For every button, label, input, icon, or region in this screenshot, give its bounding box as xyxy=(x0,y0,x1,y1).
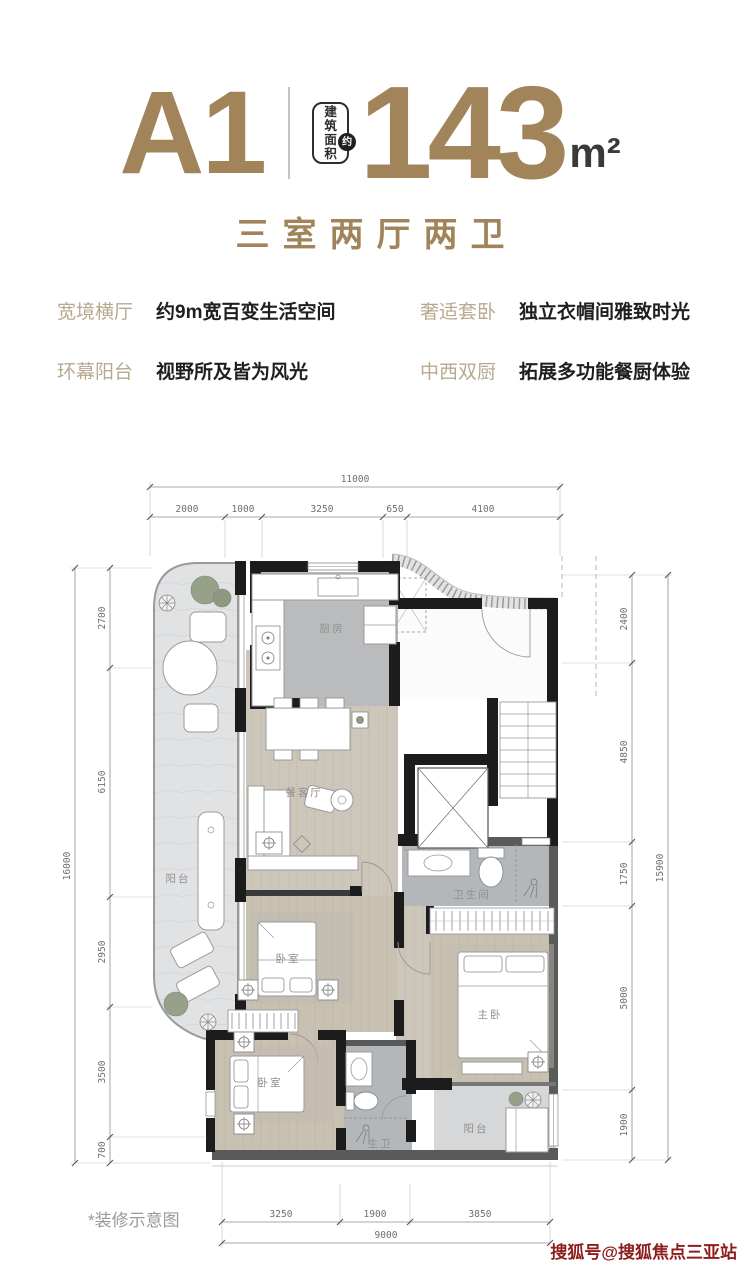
room-label-bedroom-second: 卧室 xyxy=(258,1076,283,1089)
area-unit: m² xyxy=(569,129,620,185)
badge-char: 积 xyxy=(324,147,337,161)
room-label-bedroom-mid: 卧室 xyxy=(276,952,301,965)
hero-header: A1 建 筑 面 积 约 143 m² xyxy=(0,82,740,185)
feature-item: 环幕阳台 视野所及皆为风光 xyxy=(57,357,420,384)
room-label-balcony-bottom: 阳台 xyxy=(464,1122,489,1135)
svg-text:1900: 1900 xyxy=(619,1113,630,1136)
room-label-bathroom: 卫生间 xyxy=(453,888,491,901)
feature-title: 环幕阳台 xyxy=(57,357,133,384)
svg-text:9000: 9000 xyxy=(375,1230,398,1241)
badge-char: 筑 xyxy=(324,119,337,133)
svg-text:11000: 11000 xyxy=(341,474,370,485)
feature-item: 中西双厨 拓展多功能餐厨体验 xyxy=(420,357,696,384)
svg-text:6150: 6150 xyxy=(97,770,108,793)
kitchen-stove xyxy=(256,626,280,670)
svg-text:2400: 2400 xyxy=(619,607,630,630)
svg-text:650: 650 xyxy=(386,504,403,515)
property-line xyxy=(562,556,596,700)
elevator xyxy=(418,768,488,848)
svg-text:5000: 5000 xyxy=(619,986,630,1009)
decoration-note: *装修示意图 xyxy=(88,1206,180,1231)
svg-text:3850: 3850 xyxy=(469,1209,492,1220)
balcony-glass-wall xyxy=(239,563,244,1040)
badge-char: 面 xyxy=(324,133,337,147)
bedroom2-closet xyxy=(228,1010,298,1032)
svg-text:3500: 3500 xyxy=(97,1060,108,1083)
svg-text:15900: 15900 xyxy=(655,853,666,882)
svg-text:3250: 3250 xyxy=(270,1209,293,1220)
master-closet xyxy=(430,908,554,934)
room-label-balcony-left: 阳台 xyxy=(166,872,191,885)
page: A1 建 筑 面 积 约 143 m² 三室两厅两卫 宽境横厅 约9m宽百变生活… xyxy=(0,0,740,1270)
svg-text:1900: 1900 xyxy=(364,1209,387,1220)
svg-text:4100: 4100 xyxy=(472,504,495,515)
floor-plan-svg: 阳台 厨房 餐客厅 卧室 卫生间 主卧 卧室 主卫 阳台 11000 2000 … xyxy=(0,455,740,1255)
feature-desc: 独立衣帽间雅致时光 xyxy=(519,297,690,324)
stairs xyxy=(500,702,556,798)
room-label-master-bedroom: 主卧 xyxy=(478,1008,503,1021)
svg-text:2950: 2950 xyxy=(97,940,108,963)
unit-name: A1 xyxy=(119,85,264,182)
area-badge: 建 筑 面 积 约 xyxy=(312,102,349,164)
feature-item: 宽境横厅 约9m宽百变生活空间 xyxy=(57,297,420,324)
floor-plan: 阳台 厨房 餐客厅 卧室 卫生间 主卧 卧室 主卫 阳台 11000 2000 … xyxy=(0,455,740,1255)
dim-bottom: 3250 1900 3850 9000 xyxy=(219,1162,553,1248)
dim-top: 11000 2000 1000 3250 650 4100 xyxy=(147,474,563,558)
svg-text:2700: 2700 xyxy=(97,606,108,629)
area-value: 143 xyxy=(359,82,564,185)
room-entry-floor xyxy=(398,609,548,699)
feature-desc: 约9m宽百变生活空间 xyxy=(156,297,335,324)
feature-item: 奢适套卧 独立衣帽间雅致时光 xyxy=(420,297,696,324)
dim-right: 2400 4850 1750 5000 1900 15900 xyxy=(562,572,672,1163)
feature-desc: 拓展多功能餐厨体验 xyxy=(519,357,690,384)
svg-text:700: 700 xyxy=(97,1141,108,1158)
badge-char: 建 xyxy=(324,105,337,119)
layout-type-subtitle: 三室两厅两卫 xyxy=(0,207,740,256)
approx-circle-badge: 约 xyxy=(338,133,356,151)
svg-text:3250: 3250 xyxy=(311,504,334,515)
hatched-walkway xyxy=(392,554,556,604)
feature-title: 宽境横厅 xyxy=(57,297,133,324)
feature-desc: 视野所及皆为风光 xyxy=(156,357,308,384)
hero-divider xyxy=(288,87,290,179)
svg-text:1000: 1000 xyxy=(232,504,255,515)
room-label-kitchen: 厨房 xyxy=(320,622,345,635)
room-label-dining-living: 餐客厅 xyxy=(285,786,323,799)
feature-title: 奢适套卧 xyxy=(420,297,496,324)
svg-text:4850: 4850 xyxy=(619,740,630,763)
svg-text:2000: 2000 xyxy=(176,504,199,515)
watermark-sohu: 搜狐号@搜狐焦点三亚站 xyxy=(550,1238,737,1263)
feature-list: 宽境横厅 约9m宽百变生活空间 奢适套卧 独立衣帽间雅致时光 环幕阳台 视野所及… xyxy=(57,297,696,384)
svg-text:1750: 1750 xyxy=(619,862,630,885)
room-label-master-bath: 主卫 xyxy=(368,1138,393,1150)
feature-title: 中西双厨 xyxy=(420,357,496,384)
kitchen-fridge xyxy=(364,606,396,644)
svg-text:16000: 16000 xyxy=(62,851,73,880)
